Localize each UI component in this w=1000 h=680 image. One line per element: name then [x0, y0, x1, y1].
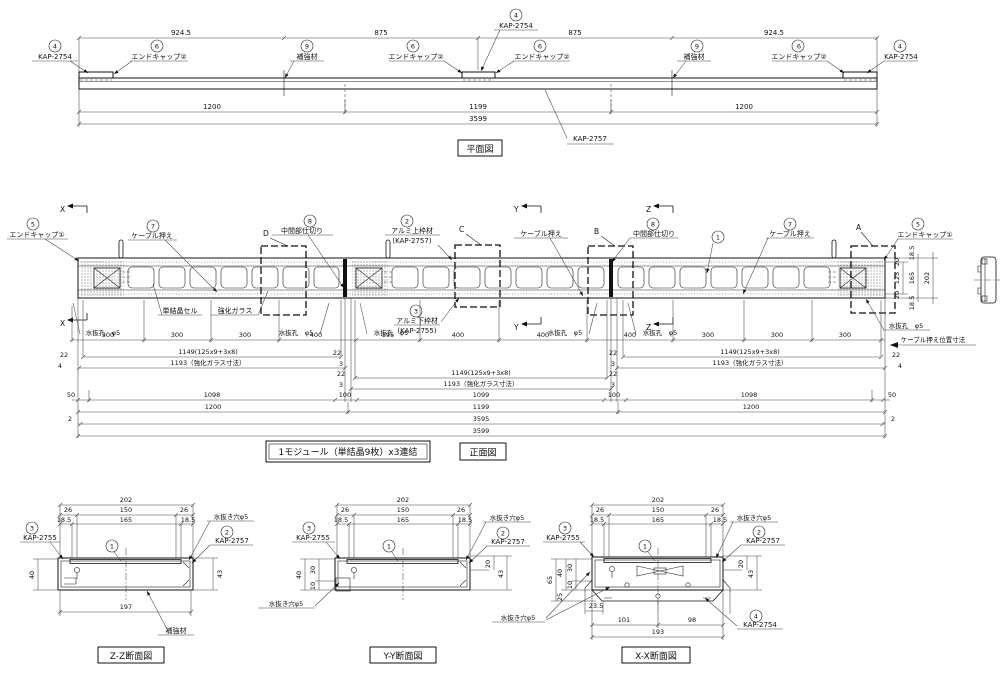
section-yy: 202 26 150 26 18.5 165 18.5 3 KAP-2755 1… — [258, 496, 531, 663]
balloon-number: 3 — [563, 525, 567, 533]
dim: 20 — [893, 291, 901, 299]
callout-label: KAP-2754 — [499, 22, 533, 30]
balloon-number: 4 — [514, 12, 518, 20]
callout-label: ケーブル押え — [520, 229, 562, 238]
dim: 30 — [566, 564, 574, 572]
solar-cells — [128, 267, 830, 288]
balloon-number: 5 — [31, 221, 35, 229]
balloon-number: 3 — [307, 525, 311, 533]
zz-title-box: Z-Z断面図 — [98, 647, 164, 663]
dim: 43 — [747, 570, 755, 578]
dim: 400 — [537, 331, 549, 339]
callout-label: アルミ上枠材 — [391, 226, 433, 235]
cable-note: ケーブル押え位置寸法 — [901, 335, 966, 344]
dim: 100 — [608, 391, 620, 399]
dim: 3595 — [473, 415, 490, 423]
balloon-number: 3 — [30, 525, 34, 533]
callout-label: エンドキャップ② — [388, 53, 443, 61]
dim: 3 — [339, 360, 343, 368]
dim: 202 — [652, 496, 664, 504]
balloon-number: 1 — [643, 543, 647, 551]
callout-label: エンドキャップ① — [9, 231, 64, 239]
dim: 50 — [67, 391, 75, 399]
drain-label: 水抜孔 φ5 — [279, 328, 313, 337]
dim: 22 — [609, 349, 617, 357]
dim: 300 — [771, 331, 783, 339]
plan-callouts: 4 KAP-2754 6 エンドキャップ② 9 補強材 6 エンドキャップ② 4… — [32, 9, 918, 78]
dim: 400 — [452, 331, 464, 339]
balloon-number: 7 — [151, 223, 155, 231]
dim: 202 — [397, 496, 409, 504]
view-title: 平面図 — [466, 144, 493, 155]
drain-label: 水抜き穴φ5 — [490, 513, 524, 522]
dim: 30 — [309, 566, 317, 574]
balloon-number: 2 — [225, 529, 229, 537]
dim: 2 — [68, 415, 72, 423]
dim: 165 — [908, 272, 916, 284]
dim: 4 — [898, 362, 902, 370]
dim: 125 — [893, 272, 901, 284]
section-letter-y: Y — [513, 205, 519, 214]
dim: 18.5 — [458, 516, 472, 524]
section-zz: 202 26 150 26 18.5 165 18.5 3 KAP-2755 1… — [20, 496, 254, 663]
dim: 101 — [618, 616, 630, 624]
balloon-number: 6 — [411, 43, 415, 51]
front-view: D C B A X X Y Y Z Z 5 エンドキャップ① 7 ケーブル押え … — [7, 204, 1000, 463]
plan-dim: 875 — [374, 29, 387, 37]
callout-label: KAP-2755 — [546, 534, 580, 542]
balloon-number: 9 — [695, 43, 699, 51]
dim: 18.5 — [713, 516, 727, 524]
drawing-sheet: 924.5 875 875 924.5 1200 1199 1200 3599 … — [0, 0, 1000, 680]
dim: 165 — [397, 516, 409, 524]
dim: 50 — [888, 391, 896, 399]
dim: 18.5 — [181, 516, 195, 524]
dim: 40 — [295, 571, 303, 579]
yy-profile — [335, 548, 470, 600]
dim: 4 — [58, 362, 62, 370]
dim: 1193（強化ガラス寸法） — [713, 358, 788, 367]
section-letter-y: Y — [513, 323, 519, 332]
dim: 65 — [546, 576, 554, 584]
balloon-number: 6 — [155, 43, 159, 51]
dim: 10 — [566, 581, 574, 589]
section-letter-x: X — [60, 205, 65, 214]
dim: 1098 — [204, 391, 221, 399]
plan-dim-top: 924.5 875 875 924.5 — [77, 29, 879, 72]
callout-label: アルミ下枠材 — [396, 316, 438, 325]
end-profile — [974, 257, 1000, 303]
section-letter-z: Z — [646, 205, 651, 214]
dim: 20 — [484, 560, 492, 568]
dim: 165 — [120, 516, 132, 524]
detail-letter-a: A — [856, 223, 862, 232]
dim: 3 — [339, 381, 343, 389]
xx-title-box: X-X断面図 — [622, 647, 690, 663]
yy-title-box: Y-Y断面図 — [370, 647, 436, 663]
callout-label: KAP-2754 — [743, 621, 777, 629]
dim: 22 — [892, 351, 900, 359]
dim: 26 — [180, 506, 188, 514]
dim: 1200 — [743, 403, 760, 411]
dim: 22 — [609, 370, 617, 378]
callout-label: 中間部仕切り — [633, 229, 675, 238]
callout-label2: (KAP-2757) — [392, 237, 431, 245]
dim: 18.5 — [908, 246, 916, 260]
dim: 26 — [596, 506, 604, 514]
callout-label: エンドキャップ② — [514, 53, 569, 61]
dim: 165 — [652, 516, 664, 524]
plan-dim: 875 — [568, 29, 581, 37]
module-note-box: 1モジュール（単結晶9枚）x3連結 — [266, 441, 430, 462]
balloon-number: 7 — [788, 221, 792, 229]
view-title: Y-Y断面図 — [382, 650, 422, 662]
balloon-number: 8 — [308, 218, 312, 226]
dim: 300 — [702, 331, 714, 339]
view-title: 正面図 — [469, 448, 496, 459]
dim: 300 — [839, 331, 851, 339]
dim: 40 — [28, 571, 36, 579]
plan-dim-bottom: 1200 1199 1200 3599 — [77, 89, 879, 127]
dim: 1193（強化ガラス寸法） — [444, 379, 519, 388]
callout-label: 補強材 — [297, 52, 318, 61]
dim: 23.5 — [589, 602, 603, 610]
view-title: Z-Z断面図 — [110, 650, 152, 662]
dim: 193 — [652, 628, 664, 636]
drain-label: 水抜き穴φ5 — [269, 599, 303, 608]
dim: 18.5 — [57, 516, 71, 524]
dim: 1199 — [473, 403, 490, 411]
dim: 1193（強化ガラス寸法） — [171, 358, 246, 367]
balloon-number: 9 — [305, 43, 309, 51]
dim: 98 — [688, 616, 696, 624]
drain-label: 水抜き穴φ5 — [501, 613, 535, 622]
detail-letter-d: D — [263, 229, 269, 238]
dim: 300 — [102, 331, 114, 339]
callout-label: 中間部仕切り — [281, 226, 323, 235]
dim: 197 — [120, 603, 132, 611]
front-right-dims: 20 125 20 18.5 165 18.5 202 ケーブル押え位置寸法 — [885, 246, 976, 348]
section-letter-x: X — [60, 319, 65, 328]
balloon-number: 2 — [501, 530, 505, 538]
balloon-number: 1 — [110, 543, 114, 551]
dim: 1149(125x9+3x8) — [720, 348, 780, 356]
drain-labels: 水抜孔 φ5 水抜孔 φ5 水抜孔 φ5 水抜孔 φ5 水抜孔 φ5 水抜孔 φ… — [73, 299, 930, 337]
balloon-number: 1 — [716, 234, 720, 242]
dim: 10 — [309, 582, 317, 590]
callout-label: KAP-2755 — [296, 534, 330, 542]
dim: 43 — [497, 570, 505, 578]
balloon-number: 5 — [916, 221, 920, 229]
dim: 202 — [923, 272, 931, 284]
dim: 1099 — [473, 391, 490, 399]
balloon-number: 6 — [797, 43, 801, 51]
front-dim-rows: 300 300 300 400 195 400 400 400 300 300 … — [58, 298, 902, 438]
zz-profile — [58, 548, 193, 600]
balloon-number: 4 — [754, 613, 758, 621]
dim: 195 — [382, 331, 394, 339]
glass-label: 強化ガラス — [218, 306, 253, 315]
dim: 3 — [611, 360, 615, 368]
drain-label: 水抜き穴φ5 — [214, 512, 248, 521]
balloon-number: 6 — [538, 43, 542, 51]
balloon-number: 2 — [757, 529, 761, 537]
view-title: X-X断面図 — [635, 650, 677, 662]
dim: 22 — [337, 370, 345, 378]
dim: 2 — [891, 415, 895, 423]
balloon-number: 8 — [651, 221, 655, 229]
dim: 25 — [556, 593, 564, 601]
drain-label: 水抜き穴φ5 — [737, 513, 771, 522]
dim: 26 — [64, 506, 72, 514]
dim: 150 — [397, 506, 409, 514]
drain-label: 水抜孔 φ5 — [548, 328, 582, 337]
dim: 18.5 — [590, 516, 604, 524]
dim: 150 — [120, 506, 132, 514]
callout-label: KAP-2755 — [23, 534, 57, 542]
front-title-box: 正面図 — [460, 443, 506, 460]
callout-label: KAP-2757 — [491, 538, 525, 546]
dim: 20 — [737, 560, 745, 568]
xx-bottom-dims: 23.5 101 98 193 — [585, 590, 730, 640]
xx-callouts: 3 KAP-2755 1 水抜き穴φ5 2 KAP-2757 水抜き穴φ5 4 … — [492, 513, 785, 629]
plan-dim: 1200 — [203, 103, 221, 111]
dim: 18.5 — [908, 296, 916, 310]
dim: 43 — [216, 570, 224, 578]
part-label: KAP-2757 — [573, 135, 607, 143]
balloon-number: 4 — [53, 43, 57, 51]
balloon-number: 1 — [387, 543, 391, 551]
dim: 300 — [171, 331, 183, 339]
callout-label: 補強材 — [684, 52, 705, 61]
front-body — [78, 240, 885, 298]
callout-label: KAP-2757 — [215, 537, 249, 545]
detail-letter-b: B — [594, 227, 599, 236]
module-note: 1モジュール（単結晶9枚）x3連結 — [279, 446, 418, 458]
dim: 22 — [60, 351, 68, 359]
callout-label: KAP-2757 — [746, 537, 780, 545]
drain-label: 水抜孔 φ5 — [643, 328, 677, 337]
dim: 18.5 — [334, 516, 348, 524]
callout-label: ケーブル押え — [769, 229, 811, 238]
callout-label: エンドキャップ② — [131, 53, 186, 61]
plan-view: 924.5 875 875 924.5 1200 1199 1200 3599 … — [32, 9, 918, 156]
plan-dim: 924.5 — [171, 29, 191, 37]
callout-label: KAP-2754 — [884, 53, 918, 61]
dim: 100 — [339, 391, 351, 399]
plan-dim: 1199 — [469, 103, 487, 111]
cad-drawing: 924.5 875 875 924.5 1200 1199 1200 3599 … — [0, 0, 1000, 680]
dim: 3599 — [473, 427, 490, 435]
plan-dim-total: 3599 — [469, 115, 487, 123]
section-xx: 202 26 150 26 18.5 165 18.5 3 KAP-2755 1… — [492, 496, 785, 663]
dim: 1098 — [741, 391, 758, 399]
balloon-number: 2 — [405, 218, 409, 226]
cell-label: 単結晶セル — [163, 306, 198, 315]
dim: 40 — [556, 569, 564, 577]
dim: 1200 — [205, 403, 222, 411]
dim: 400 — [624, 331, 636, 339]
dim: 26 — [341, 506, 349, 514]
xx-top-dims: 202 26 150 26 18.5 165 18.5 — [590, 496, 727, 557]
callout-label: エンドキャップ② — [771, 53, 826, 61]
balloon-number: 4 — [898, 43, 902, 51]
plan-dim: 924.5 — [764, 29, 784, 37]
dim: 300 — [239, 331, 251, 339]
detail-letter-c: C — [459, 225, 464, 234]
balloon-number: 3 — [414, 308, 418, 316]
plan-body-label: KAP-2757 — [545, 90, 614, 144]
dim: 26 — [457, 506, 465, 514]
plan-dim: 1200 — [735, 103, 753, 111]
dim: 3 — [611, 381, 615, 389]
dim: 150 — [652, 506, 664, 514]
dim: 1149(125x9+3x8) — [178, 348, 238, 356]
callout-label: ケーブル押え — [131, 231, 173, 240]
dim: 400 — [310, 331, 322, 339]
dim: 20 — [893, 258, 901, 266]
xx-profile — [585, 548, 730, 612]
dim: 202 — [120, 496, 132, 504]
dim: 26 — [711, 506, 719, 514]
callout-label: エンドキャップ① — [897, 231, 952, 239]
drain-label: 水抜孔 φ5 — [889, 321, 923, 330]
dim: 1149(125x9+3x8) — [451, 369, 511, 377]
dim: 22 — [333, 349, 341, 357]
plan-title-box: 平面図 — [458, 140, 502, 156]
callout-label: KAP-2754 — [38, 53, 72, 61]
part-label: 補強材 — [166, 626, 187, 635]
